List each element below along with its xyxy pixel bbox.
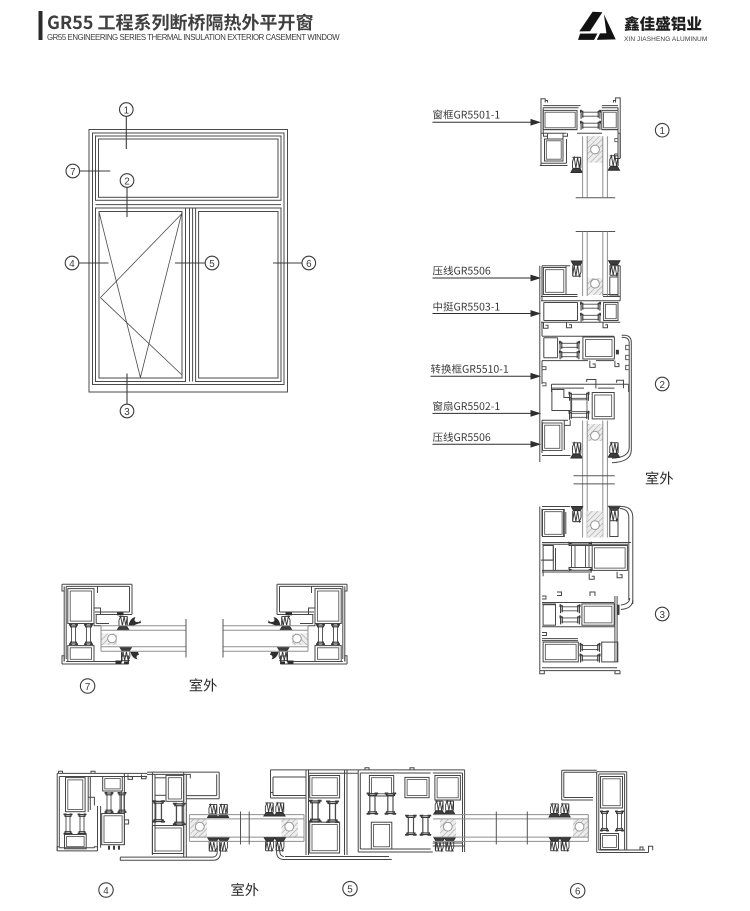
svg-text:GR55 ENGINEERING SERIES THERMA: GR55 ENGINEERING SERIES THERMAL INSULATI… [47, 33, 340, 42]
svg-text:1: 1 [124, 105, 129, 116]
svg-text:7: 7 [85, 682, 90, 693]
svg-text:5: 5 [209, 259, 215, 270]
svg-text:6: 6 [575, 887, 581, 898]
svg-text:3: 3 [659, 610, 665, 621]
svg-text:2: 2 [124, 176, 129, 187]
svg-text:4: 4 [103, 886, 109, 897]
svg-text:6: 6 [306, 259, 312, 270]
svg-text:7: 7 [70, 167, 75, 178]
svg-text:3: 3 [124, 407, 130, 418]
svg-text:XIN JIASHENG ALUMINUM: XIN JIASHENG ALUMINUM [624, 36, 707, 43]
svg-text:4: 4 [69, 259, 75, 270]
svg-text:2: 2 [659, 380, 664, 391]
svg-text:1: 1 [659, 126, 664, 137]
svg-text:5: 5 [347, 885, 353, 896]
